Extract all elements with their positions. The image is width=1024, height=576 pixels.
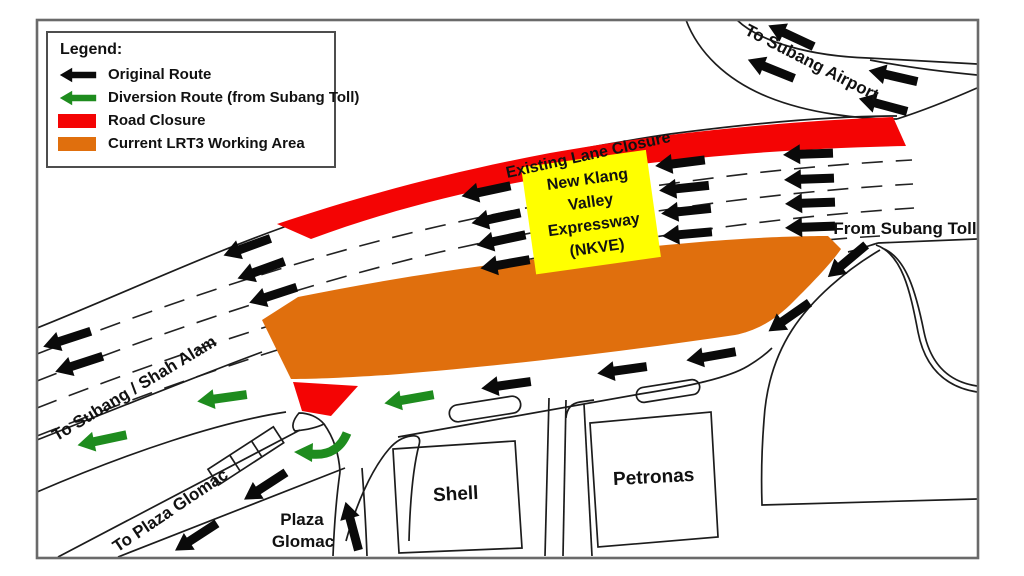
to-plaza-glomac-label: To Plaza Glomac xyxy=(109,465,231,556)
working-area-swatch-icon xyxy=(58,137,98,151)
original-route-arrow xyxy=(52,347,106,381)
original-route-arrow xyxy=(685,342,738,370)
original-route-arrow xyxy=(660,198,712,223)
original-route-arrow xyxy=(336,499,368,552)
legend-item-label: Original Route xyxy=(108,66,211,83)
shell-label: Shell xyxy=(432,483,478,506)
diversion-route-arrow xyxy=(383,385,436,413)
legend-item-label: Diversion Route (from Subang Toll) xyxy=(108,89,359,106)
plaza-glomac-label-line2: Glomac xyxy=(272,532,334,551)
to-subang-shah-alam-label: To Subang / Shah Alam xyxy=(49,332,220,445)
original-route-arrow xyxy=(785,216,836,238)
black-arrow-icon xyxy=(58,67,98,83)
original-route-arrow xyxy=(474,225,527,255)
legend-item-label: Current LRT3 Working Area xyxy=(108,135,305,152)
legend-item-original-route: Original Route xyxy=(58,65,324,84)
green-arrow-icon xyxy=(58,90,98,106)
diversion-route-arrow xyxy=(196,385,248,412)
legend-item-working-area: Current LRT3 Working Area xyxy=(58,134,324,153)
legend: Legend: Original Route Diversion Route (… xyxy=(46,31,336,168)
from-subang-toll-label: From Subang Toll xyxy=(833,219,976,238)
legend-title: Legend: xyxy=(60,41,324,59)
legend-item-label: Road Closure xyxy=(108,112,206,129)
original-route-arrow xyxy=(170,515,223,559)
legend-item-road-closure: Road Closure xyxy=(58,111,324,130)
petronas-label: Petronas xyxy=(613,465,695,490)
road-closure-swatch-icon xyxy=(58,114,98,128)
road-closure-wedge xyxy=(293,382,358,416)
original-route-arrow xyxy=(480,372,532,399)
original-route-arrow xyxy=(596,357,648,384)
plaza-glomac-label-line1: Plaza xyxy=(280,510,324,529)
legend-item-diversion-route: Diversion Route (from Subang Toll) xyxy=(58,88,324,107)
original-route-arrow xyxy=(40,322,94,356)
original-route-arrow xyxy=(785,192,836,214)
original-route-arrow xyxy=(469,203,522,233)
original-route-arrow xyxy=(239,464,292,508)
traffic-diversion-map: { "colors": { "original_route": "#0a0a0a… xyxy=(0,0,1024,576)
original-route-arrow xyxy=(784,168,835,190)
